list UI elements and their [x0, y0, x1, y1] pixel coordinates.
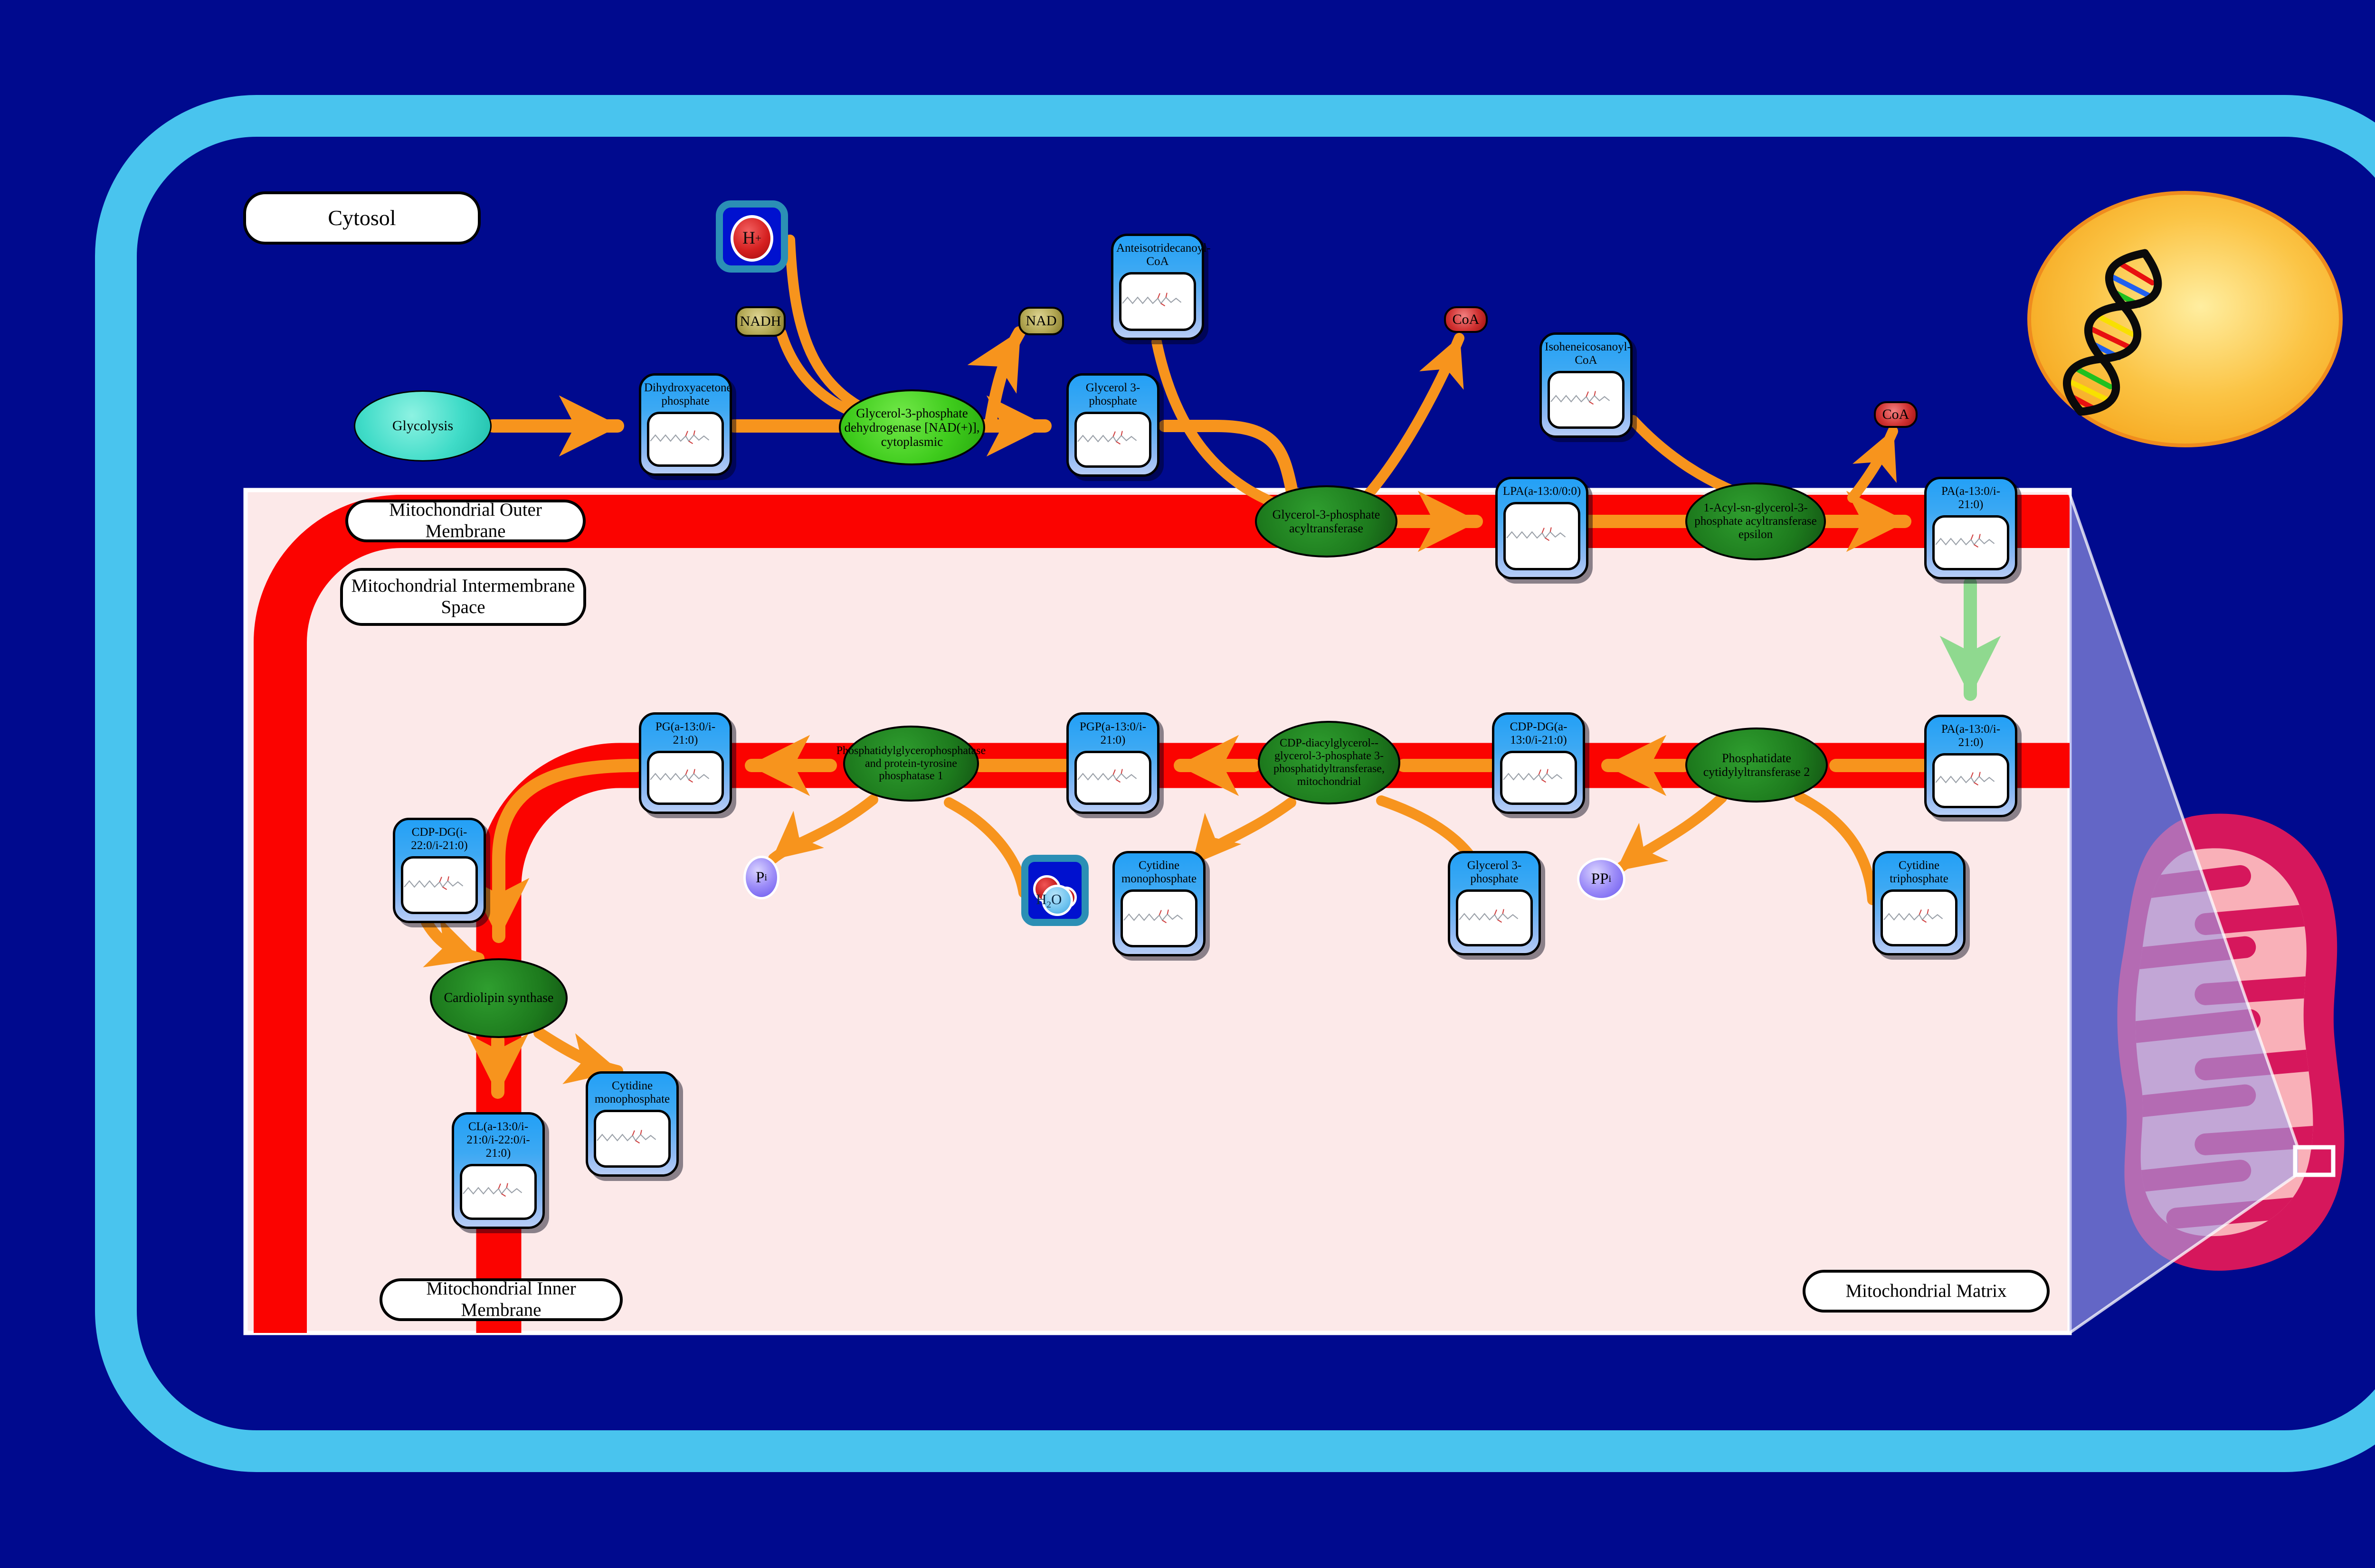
- metabolite-label: Cytidine triphosphate: [1875, 853, 1963, 888]
- metabolite-label: CDP-DG(i-22:0/i-21:0): [395, 820, 484, 854]
- metabolite-cmp-bottom[interactable]: Cytidine monophosphate: [586, 1071, 679, 1177]
- chemical-structure: [1456, 889, 1533, 946]
- enzyme-label: Glycerol-3-phosphate dehydrogenase [NAD(…: [841, 406, 983, 449]
- enzyme-label: Glycerol-3-phosphate acyltransferase: [1257, 508, 1396, 535]
- metabolite-anteisotridecanoyl-coa[interactable]: Anteisotridecanoyl-CoA: [1111, 234, 1204, 340]
- metabolite-label: Cytidine monophosphate: [588, 1074, 676, 1108]
- label-outer-membrane: Mitochondrial Outer Membrane: [345, 500, 586, 542]
- chemical-structure: [594, 1110, 671, 1168]
- chemical-structure: [401, 856, 478, 914]
- metabolite-lpa[interactable]: LPA(a-13:0/0:0): [1495, 477, 1588, 579]
- enzyme-cds2[interactable]: Phosphatidate cytidylyltransferase 2: [1685, 727, 1828, 803]
- chemical-structure: [1932, 753, 2009, 808]
- hplus-label: H: [742, 228, 755, 248]
- enzyme-label: Phosphatidylglycerophosphatase and prote…: [836, 745, 986, 783]
- chemical-structure: [1074, 412, 1151, 468]
- chemical-structure: [1503, 502, 1580, 570]
- arrow-gpd1-to-nad: [990, 332, 1019, 424]
- metabolite-coa-2[interactable]: CoA: [1874, 401, 1918, 428]
- ppi-sub: i: [1609, 874, 1612, 885]
- metabolite-pgp[interactable]: PGP(a-13:0/i-21:0): [1066, 712, 1159, 814]
- metabolite-label: CDP-DG(a-13:0/i-21:0): [1494, 715, 1583, 749]
- metabolite-pa-outer[interactable]: PA(a-13:0/i-21:0): [1924, 477, 2017, 579]
- label-matrix: Mitochondrial Matrix: [1803, 1270, 2050, 1313]
- label-cytosol-text: Cytosol: [328, 206, 396, 231]
- hydrogen-ion-icon[interactable]: H+: [716, 200, 788, 273]
- metabolite-cl[interactable]: CL(a-13:0/i-21:0/i-22:0/i-21:0): [452, 1112, 545, 1229]
- metabolite-g3p-matrix[interactable]: Glycerol 3-phosphate: [1448, 851, 1541, 955]
- line-isohen-coa-to-agpat: [1633, 420, 1742, 495]
- metabolite-cmp-mid[interactable]: Cytidine monophosphate: [1112, 851, 1206, 956]
- enzyme-cgs[interactable]: CDP-diacylglycerol--glycerol-3-phosphate…: [1258, 721, 1400, 804]
- enzyme-agpat-epsilon[interactable]: 1-Acyl-sn-glycerol-3-phosphate acyltrans…: [1685, 482, 1826, 560]
- pathway-diagram: Cytosol Mitochondrial Outer Membrane Mit…: [0, 0, 2375, 1568]
- metabolite-label: LPA(a-13:0/0:0): [1498, 479, 1586, 500]
- chemical-structure: [1121, 889, 1197, 947]
- chemical-structure: [460, 1164, 537, 1220]
- label-inner-membrane-text: Mitochondrial Inner Membrane: [387, 1278, 615, 1321]
- enzyme-label: CDP-diacylglycerol--glycerol-3-phosphate…: [1260, 737, 1398, 788]
- metabolite-label: Dihydroxyacetone phosphate: [641, 376, 730, 410]
- nucleus-illustration: [2029, 193, 2341, 445]
- metabolite-ppi[interactable]: PPi: [1577, 858, 1625, 900]
- pi-label: P: [756, 869, 764, 887]
- enzyme-gpd1[interactable]: Glycerol-3-phosphate dehydrogenase [NAD(…: [839, 389, 985, 465]
- label-matrix-text: Mitochondrial Matrix: [1845, 1281, 2006, 1302]
- enzyme-label: 1-Acyl-sn-glycerol-3-phosphate acyltrans…: [1687, 501, 1824, 541]
- metabolite-pg[interactable]: PG(a-13:0/i-21:0): [639, 712, 732, 814]
- label-inner-membrane: Mitochondrial Inner Membrane: [380, 1278, 623, 1321]
- metabolite-nadh[interactable]: NADH: [735, 306, 786, 337]
- metabolite-label: Glycerol 3-phosphate: [1069, 376, 1157, 410]
- enzyme-label: Phosphatidate cytidylyltransferase 2: [1687, 751, 1826, 779]
- chemical-structure: [1881, 889, 1957, 946]
- water-icon[interactable]: H2O: [1021, 855, 1089, 926]
- label-intermembrane-space-text: Mitochondrial Intermembrane Space: [348, 576, 579, 618]
- enzyme-cardiolipin-synthase[interactable]: Cardiolipin synthase: [430, 958, 568, 1038]
- chemical-structure: [1074, 751, 1151, 805]
- metabolite-label: Glycerol 3-phosphate: [1450, 853, 1539, 888]
- metabolite-dhap[interactable]: Dihydroxyacetone phosphate: [639, 373, 732, 476]
- nadh-label: NADH: [740, 313, 781, 330]
- nad-label: NAD: [1026, 313, 1057, 329]
- pathway-node-glycolysis[interactable]: Glycolysis: [354, 390, 492, 462]
- metabolite-pa-inner[interactable]: PA(a-13:0/i-21:0): [1924, 715, 2017, 817]
- pi-sub: i: [764, 872, 767, 883]
- chemical-structure: [1548, 371, 1624, 429]
- metabolite-ctp[interactable]: Cytidine triphosphate: [1872, 851, 1966, 955]
- enzyme-gpat[interactable]: Glycerol-3-phosphate acyltransferase: [1255, 485, 1397, 557]
- node-label: Glycolysis: [392, 418, 453, 434]
- chemical-structure: [647, 412, 724, 467]
- chemical-structure: [1119, 272, 1196, 331]
- metabolite-label: CL(a-13:0/i-21:0/i-22:0/i-21:0): [454, 1115, 542, 1162]
- metabolite-label: PA(a-13:0/i-21:0): [1927, 479, 2015, 513]
- arrow-gpat-to-coa: [1368, 338, 1459, 495]
- metabolite-cdp-dg-i[interactable]: CDP-DG(i-22:0/i-21:0): [393, 818, 486, 923]
- metabolite-label: PA(a-13:0/i-21:0): [1927, 717, 2015, 751]
- chemical-structure: [1500, 751, 1577, 805]
- metabolite-cdp-dg-a[interactable]: CDP-DG(a-13:0/i-21:0): [1492, 712, 1585, 814]
- metabolite-label: Cytidine monophosphate: [1115, 853, 1203, 888]
- label-cytosol: Cytosol: [243, 191, 481, 245]
- metabolite-isoheneicosanoyl-coa[interactable]: Isoheneicosanoyl-CoA: [1539, 332, 1633, 438]
- proton-icon: H+: [731, 215, 773, 262]
- label-outer-membrane-text: Mitochondrial Outer Membrane: [353, 500, 578, 542]
- ppi-label: PP: [1591, 870, 1609, 888]
- h2o-label: H2O: [1036, 891, 1062, 910]
- metabolite-nad[interactable]: NAD: [1018, 307, 1064, 335]
- metabolite-label: Isoheneicosanoyl-CoA: [1542, 335, 1630, 369]
- label-intermembrane-space: Mitochondrial Intermembrane Space: [340, 568, 586, 626]
- arrow-agpat-to-coa: [1852, 431, 1893, 498]
- metabolite-g3p-cytosol[interactable]: Glycerol 3-phosphate: [1066, 373, 1159, 477]
- metabolite-pi[interactable]: Pi: [743, 856, 779, 899]
- metabolite-label: Anteisotridecanoyl-CoA: [1113, 236, 1202, 270]
- coa-label: CoA: [1453, 312, 1480, 328]
- enzyme-ptpmt1[interactable]: Phosphatidylglycerophosphatase and prote…: [843, 726, 979, 802]
- chemical-structure: [647, 751, 724, 805]
- hplus-sup: +: [755, 232, 761, 245]
- chemical-structure: [1932, 515, 2009, 570]
- metabolite-label: PGP(a-13:0/i-21:0): [1069, 715, 1157, 749]
- metabolite-coa-1[interactable]: CoA: [1444, 306, 1488, 333]
- enzyme-label: Cardiolipin synthase: [444, 991, 554, 1005]
- coa-label: CoA: [1882, 406, 1909, 423]
- metabolite-label: PG(a-13:0/i-21:0): [641, 715, 730, 749]
